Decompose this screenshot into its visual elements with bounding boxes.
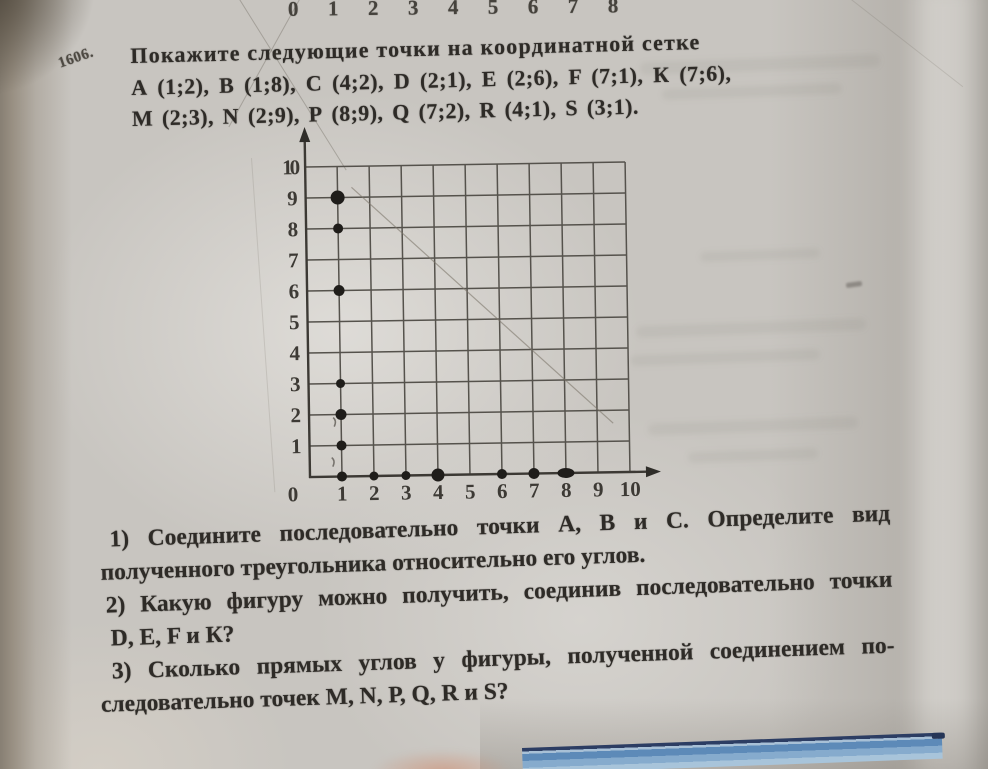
plotted-dot (333, 223, 343, 233)
y-tick-label: 8 (287, 217, 298, 241)
coordinate-grid-svg: 12345678910012345678910 (258, 114, 664, 528)
ruler-number: 0 (273, 0, 313, 22)
page-decoration-blue-stripe (522, 733, 943, 769)
x-tick-label: 5 (465, 479, 476, 503)
y-axis (305, 138, 310, 478)
photo-of-textbook-page: 012345678 1606. Покажите следующие точки… (0, 0, 988, 769)
x-axis (309, 472, 653, 477)
x-tick-label: 3 (401, 480, 412, 504)
y-tick-label: 9 (287, 186, 298, 210)
plotted-dot (497, 469, 507, 479)
y-tick-label: 10 (282, 155, 300, 179)
stray-mark (333, 418, 335, 427)
ruler-number: 4 (433, 0, 473, 20)
pencil-mark (846, 281, 863, 288)
plotted-dot (335, 409, 346, 420)
y-tick-label: 1 (291, 434, 302, 458)
plotted-dot (333, 285, 344, 296)
plotted-dot (369, 471, 378, 480)
y-tick-label: 3 (290, 372, 301, 396)
paper-highlight-streak (915, 0, 977, 769)
x-tick-label: 4 (433, 480, 444, 504)
ruler-number: 5 (473, 0, 513, 20)
top-ruler-numbers: 012345678 (273, 0, 633, 22)
x-tick-label: 2 (369, 481, 380, 505)
plotted-dot (337, 471, 347, 481)
paper-crease (844, 0, 963, 87)
y-tick-label: 2 (290, 403, 301, 427)
coordinate-grid: 12345678910012345678910 (258, 114, 664, 528)
y-tick-label: 7 (288, 248, 299, 272)
plotted-dot (331, 190, 345, 204)
ruler-number: 8 (593, 0, 633, 19)
plotted-dot (336, 440, 346, 450)
ruler-number: 1 (313, 0, 353, 22)
x-tick-label: 10 (620, 477, 641, 501)
ruler-number: 2 (353, 0, 393, 21)
y-tick-label: 6 (288, 279, 299, 303)
fingertip-blur (372, 750, 512, 769)
problem-number: 1606. (56, 45, 96, 73)
x-tick-label: 7 (529, 478, 540, 502)
x-axis-arrow (646, 466, 661, 477)
ink-bleed-smudge (688, 448, 818, 464)
ruler-number: 7 (553, 0, 593, 19)
x-tick-label: 1 (337, 481, 348, 505)
plotted-dot (336, 379, 345, 388)
ink-bleed-smudge (636, 318, 866, 338)
y-axis-arrow (299, 127, 310, 142)
scratch-line (351, 183, 613, 427)
plotted-dot (557, 468, 574, 478)
plotted-dot (528, 468, 539, 479)
y-tick-label: 5 (289, 310, 300, 334)
stray-mark (332, 458, 334, 467)
y-tick-label: 4 (289, 341, 300, 365)
origin-label: 0 (288, 482, 299, 506)
plotted-dot (401, 471, 410, 480)
x-tick-label: 8 (561, 478, 572, 502)
ink-bleed-smudge (648, 416, 858, 435)
questions-block: 1) Соедините последовательно точки А, В … (95, 498, 896, 722)
ink-bleed-smudge (700, 248, 820, 262)
ruler-number: 3 (393, 0, 433, 21)
x-tick-label: 6 (497, 479, 508, 503)
x-tick-label: 9 (593, 477, 604, 501)
ruler-number: 6 (513, 0, 553, 19)
